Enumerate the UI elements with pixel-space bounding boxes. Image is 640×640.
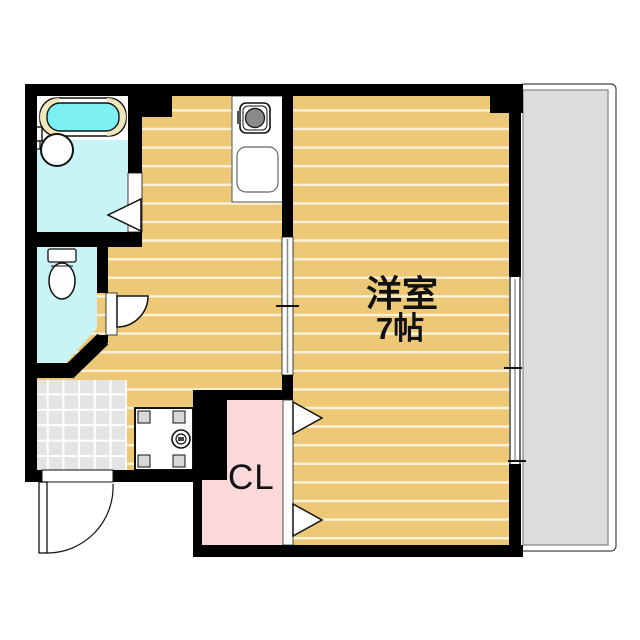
balcony: [519, 84, 616, 551]
wall-step: [128, 96, 172, 117]
entrance-tile-floor: [33, 380, 127, 472]
wall-right-lower: [509, 464, 521, 557]
wall-entrance-left: [25, 470, 42, 482]
kitchen-sink: [237, 147, 278, 192]
folding-door-track: [283, 400, 293, 545]
entrance-door-leaf: [39, 482, 47, 553]
pan-corner: [138, 411, 150, 423]
wall-entrance-right: [113, 470, 202, 482]
entrance-threshold: [42, 470, 113, 482]
pan-corner: [173, 411, 185, 423]
wall-toilet-bottom: [25, 363, 73, 378]
toilet-door-opening: [106, 293, 117, 335]
floor-plan-page: 洋室 7帖 CL: [0, 0, 640, 640]
kitchen: [232, 96, 283, 202]
wall-closet-left: [193, 470, 202, 545]
floor-plan: 洋室 7帖 CL: [0, 0, 640, 640]
wall-right-upper: [509, 96, 521, 277]
wall-pipe-space: [193, 390, 227, 480]
main-room-label: 洋室: [366, 273, 438, 314]
wall-interior-upper: [282, 96, 293, 237]
balcony-floor: [523, 90, 608, 545]
wall-bottom: [193, 545, 523, 557]
stove-burner: [246, 109, 265, 128]
toilet-bowl: [49, 263, 75, 299]
stove-knob: [237, 111, 241, 124]
pan-corner: [173, 455, 185, 467]
wall-left: [25, 84, 37, 482]
wall-top: [25, 84, 523, 96]
wall-toilet-right: [97, 247, 108, 293]
closet-label: CL: [228, 458, 275, 497]
wall-interior-mid: [282, 375, 293, 400]
washbasin: [41, 134, 73, 166]
wall-closet-top: [193, 390, 290, 400]
main-room-size-label: 7帖: [376, 311, 424, 346]
toilet-tank: [48, 249, 76, 262]
wall-bathroom-bottom: [25, 232, 142, 247]
drain-plug: [178, 437, 184, 441]
pan-corner: [138, 455, 150, 467]
bathtub: [47, 103, 119, 131]
bathroom: [28, 96, 128, 232]
washing-machine-pan: [135, 408, 193, 470]
